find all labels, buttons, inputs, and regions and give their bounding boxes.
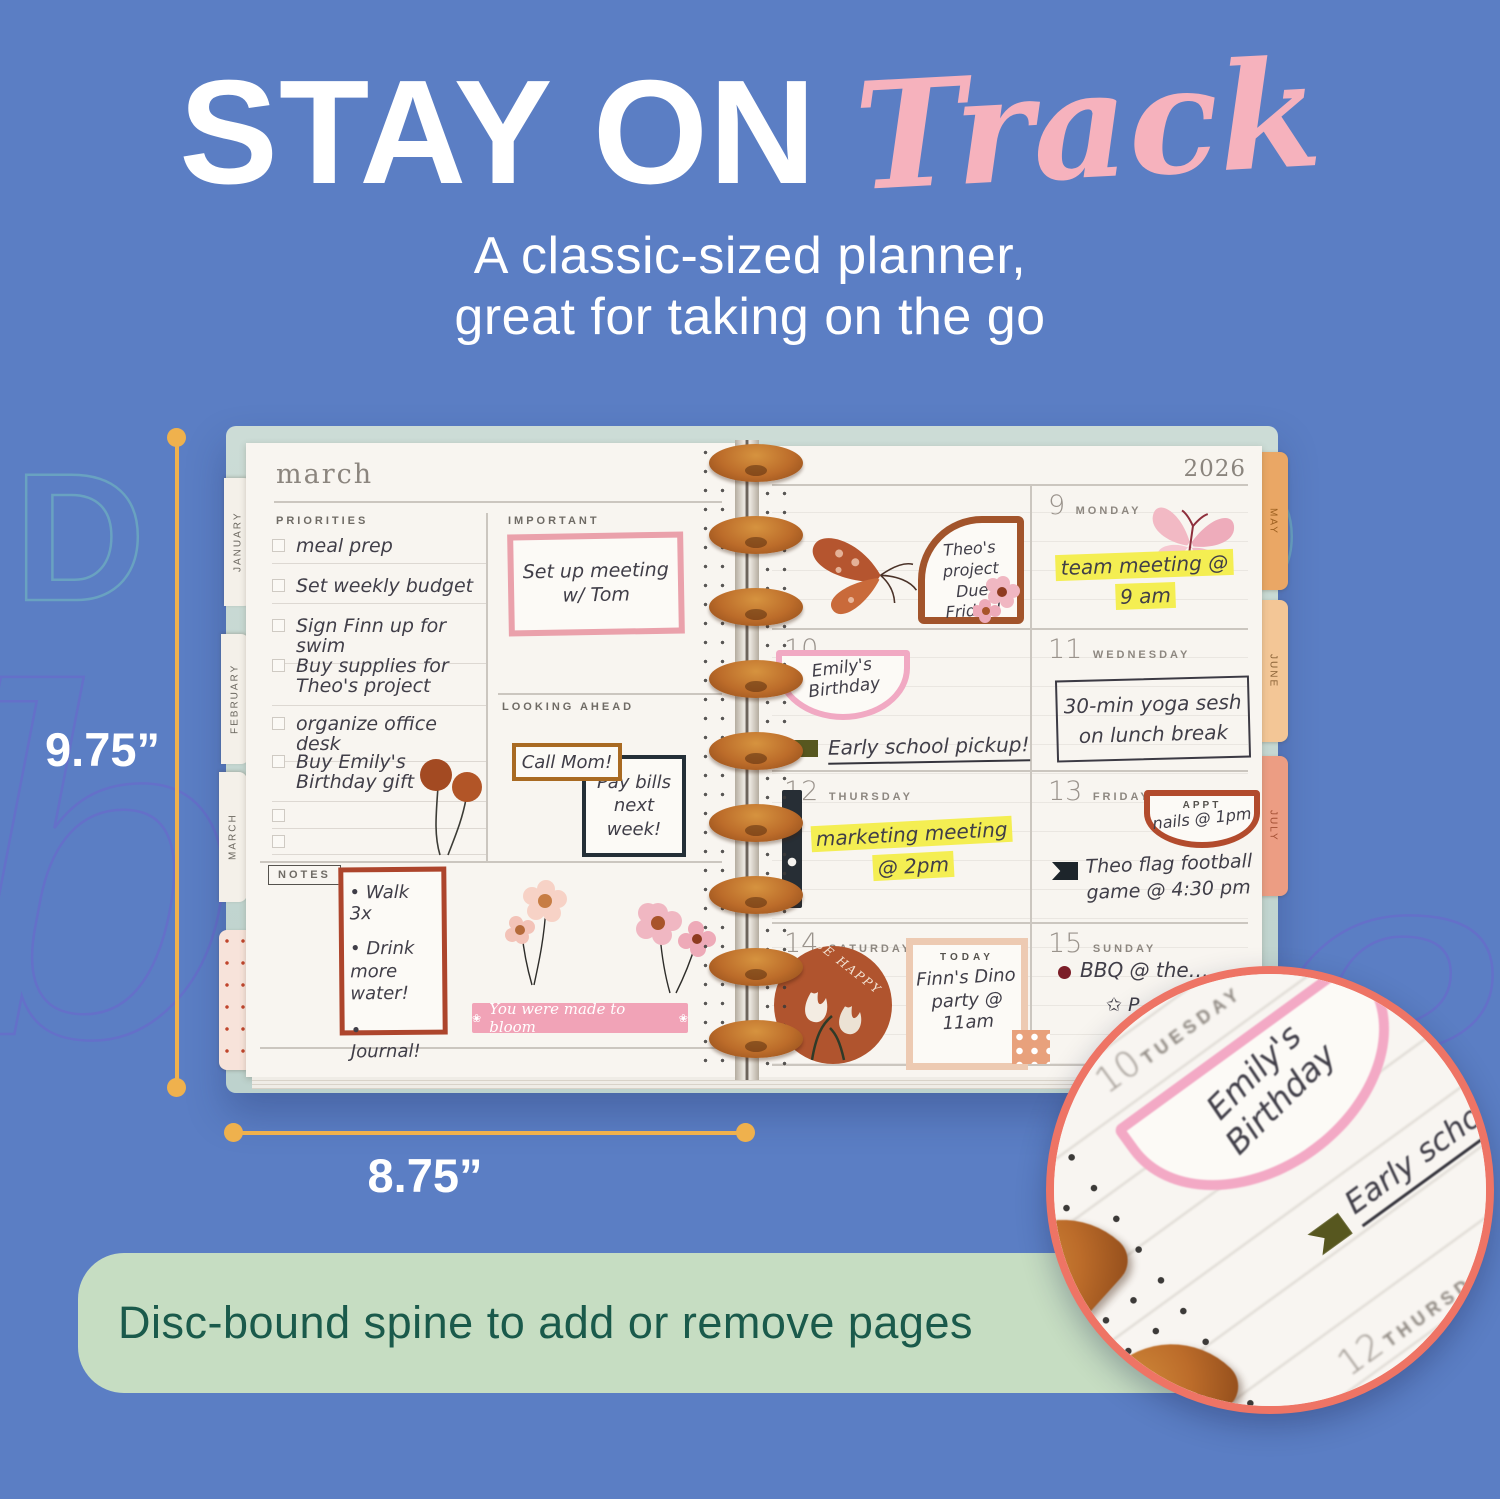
pom-flower-sticker bbox=[414, 755, 486, 859]
priority-item: meal prep bbox=[272, 535, 486, 564]
priority-item: Set weekly budget bbox=[272, 575, 486, 604]
priority-text: Set weekly budget bbox=[296, 575, 473, 597]
looking-ahead-label: LOOKING AHEAD bbox=[502, 701, 634, 713]
notes-divider bbox=[260, 861, 722, 863]
binding-disc bbox=[709, 876, 803, 914]
priority-text: Buy Emily's Birthday gift bbox=[296, 751, 414, 793]
monday-entry: team meeting @ 9 am bbox=[1049, 547, 1241, 616]
day-number: 9 bbox=[1048, 490, 1065, 521]
inset-rotated-photo: 10 TUESDAY Emily'sBirthday Early school … bbox=[1046, 966, 1494, 1414]
tab-july: JULY bbox=[1258, 756, 1288, 896]
checkbox-icon bbox=[272, 717, 285, 730]
tab-june: JUNE bbox=[1258, 600, 1288, 742]
monday-entry-text: team meeting @ 9 am bbox=[1055, 549, 1233, 610]
bottom-divider bbox=[260, 1047, 722, 1049]
yoga-note-text: 30-min yoga sesh on lunch break bbox=[1061, 687, 1245, 752]
grid-line bbox=[1030, 484, 1032, 1064]
title-script-text: Track bbox=[851, 26, 1325, 224]
important-label: IMPORTANT bbox=[508, 515, 600, 527]
day-number: 11 bbox=[1048, 634, 1082, 665]
dimension-endpoint bbox=[736, 1123, 755, 1142]
day-number: 15 bbox=[1048, 928, 1082, 959]
important-note-text: Set up meeting w/ Tom bbox=[518, 559, 675, 609]
year-label: 2026 bbox=[1183, 456, 1246, 482]
notes-box: • Walk 3x • Drink more water! • Journal! bbox=[338, 867, 447, 1036]
grid-line bbox=[772, 922, 1248, 924]
tuesday-entry: Early school pickup! bbox=[828, 732, 1030, 765]
day-name: SUNDAY bbox=[1093, 943, 1156, 955]
tab-march: MARCH bbox=[219, 772, 247, 902]
checkbox-icon bbox=[272, 755, 285, 768]
feature-banner-text: Disc-bound spine to add or remove pages bbox=[78, 1297, 973, 1349]
washi-quote-strip: ❀ You were made to bloom ❀ bbox=[472, 1003, 688, 1033]
width-dimension-label: 8.75” bbox=[330, 1148, 520, 1203]
friday-entry-text: Theo flag football game @ 4:30 pm bbox=[1085, 850, 1252, 903]
priorities-label: PRIORITIES bbox=[276, 515, 368, 527]
washi-quote-text: You were made to bloom bbox=[489, 1000, 671, 1036]
daisy-icon bbox=[973, 575, 1021, 623]
grid-line bbox=[772, 484, 1248, 486]
flower-icon: ❀ bbox=[679, 1012, 688, 1025]
checkbox-icon bbox=[272, 809, 285, 822]
binding-disc bbox=[709, 948, 803, 986]
thursday-entry: marketing meeting @ 2pm bbox=[808, 813, 1016, 888]
important-note-box: Set up meeting w/ Tom bbox=[507, 531, 685, 636]
tab-blank-floral bbox=[219, 930, 247, 1070]
binding-disc bbox=[709, 516, 803, 554]
page-title: STAY ON Track bbox=[0, 52, 1500, 215]
subtitle-line-2: great for taking on the go bbox=[0, 287, 1500, 348]
tab-may: MAY bbox=[1258, 452, 1288, 590]
day-label-wednesday: 11 WEDNESDAY bbox=[1048, 634, 1190, 665]
call-mom-note-box: Call Mom! bbox=[512, 743, 622, 781]
day-label-sunday: 15 SUNDAY bbox=[1048, 928, 1156, 959]
day-name: THURSDAY bbox=[829, 791, 913, 803]
priority-item: Buy supplies for Theo's project bbox=[272, 655, 486, 706]
friday-entry: Theo flag football game @ 4:30 pm bbox=[1085, 849, 1255, 906]
floral-washi-square bbox=[1012, 1030, 1050, 1064]
title-main-text: STAY ON bbox=[179, 52, 817, 215]
priority-text: organize office desk bbox=[296, 713, 437, 755]
dimension-endpoint bbox=[224, 1123, 243, 1142]
day-label-friday: 13 FRIDAY bbox=[1048, 776, 1151, 807]
tab-february: FEBRUARY bbox=[221, 634, 249, 764]
today-note-box: TODAY Finn's Dino party @ 11am bbox=[906, 938, 1028, 1070]
call-mom-text: Call Mom! bbox=[522, 752, 613, 773]
checkbox-icon bbox=[272, 619, 285, 632]
binding-disc bbox=[709, 1020, 803, 1058]
notes-label: NOTES bbox=[268, 865, 341, 885]
day-number: 13 bbox=[1048, 776, 1082, 807]
height-dimension-line bbox=[175, 437, 179, 1087]
width-dimension-line bbox=[233, 1131, 745, 1135]
day-label-thursday: 12 THURSDAY bbox=[784, 776, 913, 807]
disc-binding-zoom-inset: 10 TUESDAY Emily'sBirthday Early school … bbox=[1046, 966, 1494, 1414]
daisy-sticker bbox=[494, 871, 586, 989]
day-name: WEDNESDAY bbox=[1093, 649, 1191, 661]
project-note-box: Theo's project Due Friday! bbox=[918, 516, 1024, 624]
checkbox-icon bbox=[272, 835, 285, 848]
binding-disc bbox=[709, 804, 803, 842]
dimension-endpoint bbox=[167, 1078, 186, 1097]
binding-disc bbox=[709, 732, 803, 770]
month-header: march bbox=[276, 459, 373, 490]
column-divider bbox=[486, 513, 488, 861]
planner-left-page: march PRIORITIES meal prep Set weekly bu… bbox=[246, 443, 736, 1077]
tuesday-entry-text: Early school pickup! bbox=[828, 732, 1030, 760]
subtitle-line-1: A classic-sized planner, bbox=[0, 226, 1500, 287]
yoga-note-box: 30-min yoga sesh on lunch break bbox=[1055, 675, 1251, 762]
flower-icon: ❀ bbox=[472, 1012, 481, 1025]
day-label-monday: 9 MONDAY bbox=[1048, 490, 1142, 521]
section-divider bbox=[498, 693, 722, 695]
thursday-entry-text: marketing meeting @ 2pm bbox=[810, 816, 1013, 881]
binding-disc bbox=[709, 588, 803, 626]
note-item: • Walk 3x bbox=[349, 882, 435, 925]
day-name: FRIDAY bbox=[1093, 791, 1151, 803]
day-name: MONDAY bbox=[1076, 505, 1142, 517]
grid-line bbox=[772, 770, 1248, 772]
marketing-graphic: DATED bl er STAY ON Track A classic-size… bbox=[0, 0, 1500, 1499]
dimension-endpoint bbox=[167, 428, 186, 447]
checkbox-icon bbox=[272, 539, 285, 552]
pay-bills-text: Pay bills next week! bbox=[586, 771, 682, 841]
note-item: • Journal! bbox=[351, 1019, 437, 1062]
checkbox-icon bbox=[272, 579, 285, 592]
note-item: • Drink more water! bbox=[350, 938, 437, 1006]
header-divider bbox=[274, 501, 722, 503]
priority-text: Sign Finn up for swim bbox=[296, 615, 446, 657]
binding-disc bbox=[709, 444, 803, 482]
priority-text: meal prep bbox=[296, 535, 393, 557]
saturday-entry-text: Finn's Dino party @ 11am bbox=[911, 960, 1023, 1037]
tulip-icon bbox=[782, 980, 882, 1064]
binding-disc bbox=[709, 660, 803, 698]
subtitle: A classic-sized planner, great for takin… bbox=[0, 226, 1500, 349]
checkbox-icon bbox=[272, 659, 285, 672]
height-dimension-label: 9.75” bbox=[10, 722, 160, 777]
priority-text: Buy supplies for Theo's project bbox=[296, 655, 449, 697]
